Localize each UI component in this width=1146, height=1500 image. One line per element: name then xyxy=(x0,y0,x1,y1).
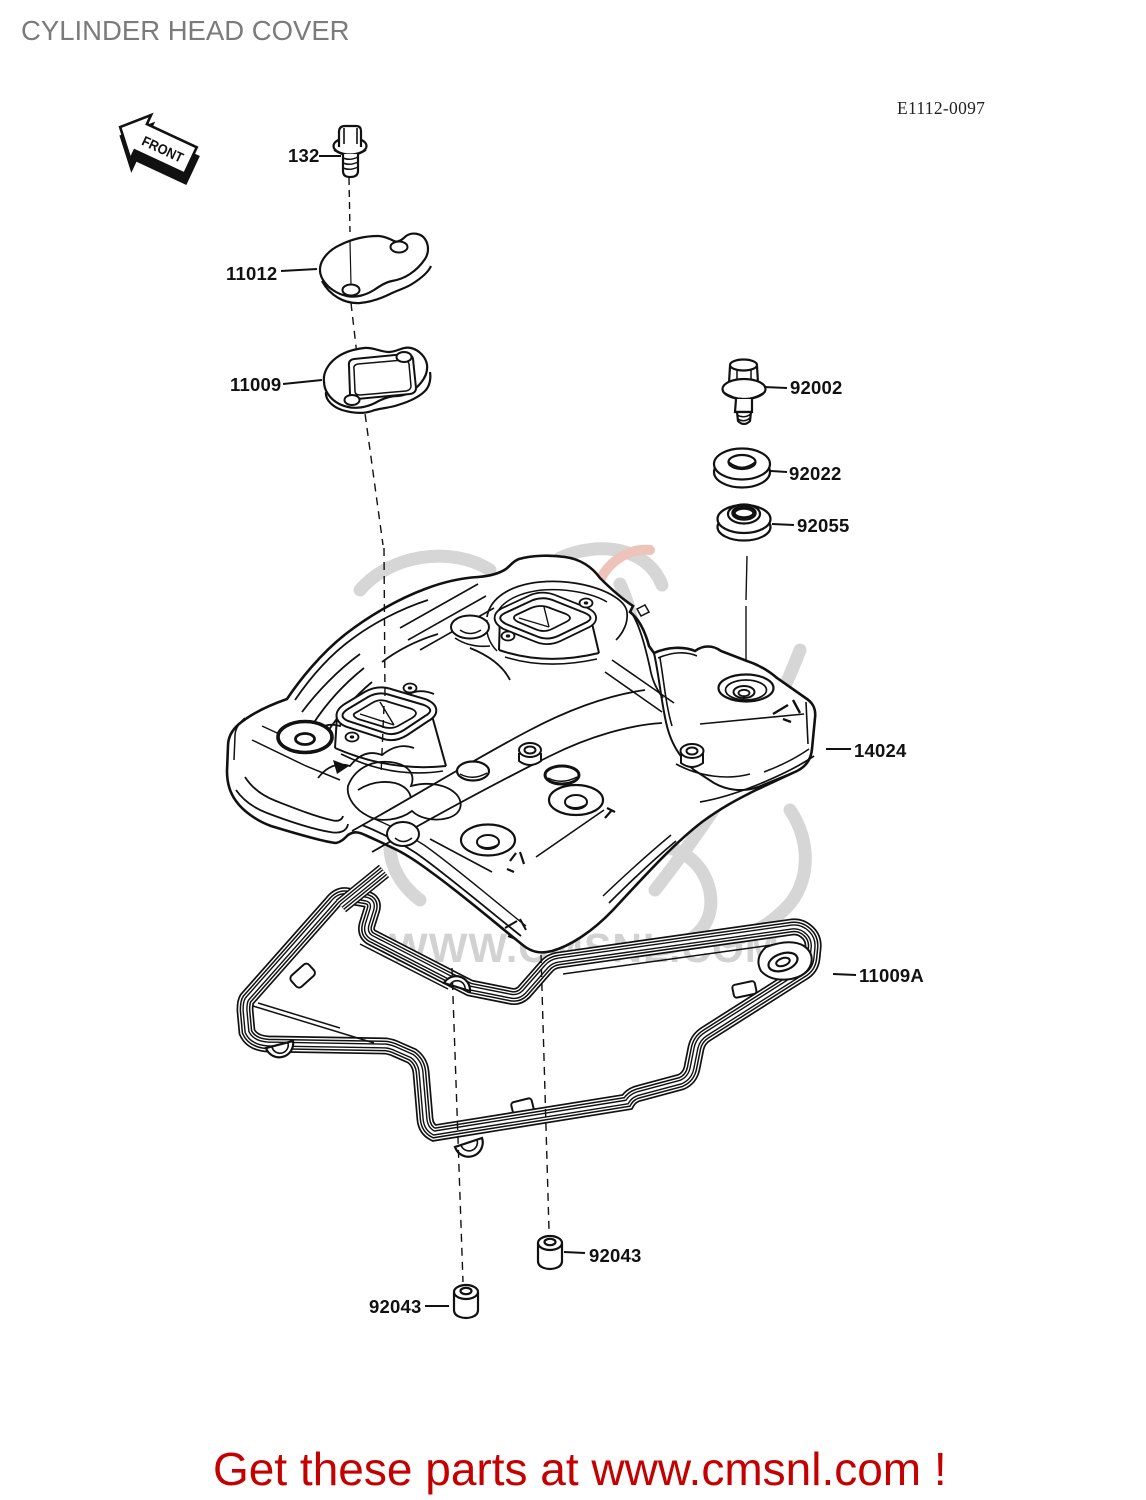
svg-text:92022: 92022 xyxy=(789,463,841,484)
svg-text:11009A: 11009A xyxy=(859,965,924,986)
svg-text:92043: 92043 xyxy=(589,1245,641,1266)
svg-text:CYLINDER HEAD COVER: CYLINDER HEAD COVER xyxy=(21,15,350,46)
svg-text:92002: 92002 xyxy=(790,377,842,398)
svg-text:92055: 92055 xyxy=(797,515,849,536)
svg-text:132: 132 xyxy=(288,145,319,166)
svg-text:11009: 11009 xyxy=(230,374,281,395)
svg-text:11012: 11012 xyxy=(226,263,277,284)
svg-text:E1112-0097: E1112-0097 xyxy=(897,98,985,118)
svg-text:14024: 14024 xyxy=(854,740,907,761)
svg-text:Get these parts at www.cmsnl.c: Get these parts at www.cmsnl.com ! xyxy=(213,1443,947,1495)
svg-text:92043: 92043 xyxy=(369,1296,421,1317)
